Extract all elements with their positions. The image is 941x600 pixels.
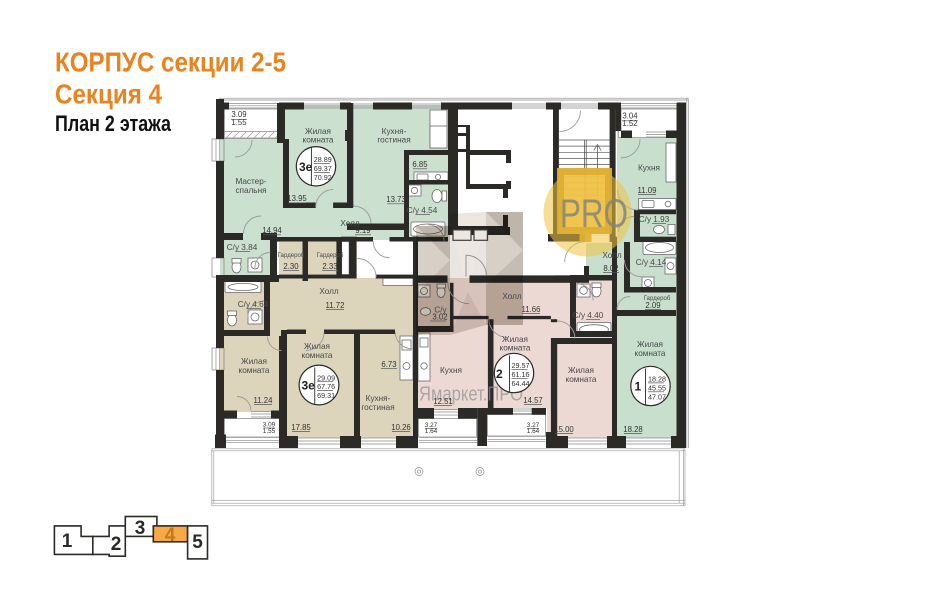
svg-text:6.85: 6.85 xyxy=(412,160,428,169)
svg-text:С/у 4.64: С/у 4.64 xyxy=(238,300,269,309)
svg-text:4: 4 xyxy=(165,525,176,546)
svg-text:10.26: 10.26 xyxy=(391,423,411,432)
svg-text:комната: комната xyxy=(302,351,333,360)
svg-text:1.64: 1.64 xyxy=(527,428,540,435)
svg-text:1.64: 1.64 xyxy=(425,428,438,435)
svg-text:5: 5 xyxy=(192,532,203,553)
svg-text:комната: комната xyxy=(566,375,597,384)
svg-text:С/у 1.93: С/у 1.93 xyxy=(639,215,670,224)
svg-text:Гардероб: Гардероб xyxy=(278,252,305,259)
svg-text:11.72: 11.72 xyxy=(326,301,345,310)
svg-text:1: 1 xyxy=(62,531,73,552)
svg-text:14.57: 14.57 xyxy=(523,396,543,405)
svg-text:Мастер-: Мастер- xyxy=(235,177,266,186)
svg-text:11.66: 11.66 xyxy=(522,305,541,314)
svg-text:18.28: 18.28 xyxy=(623,425,643,434)
svg-text:С/у 4.40: С/у 4.40 xyxy=(573,311,604,320)
svg-text:2.09: 2.09 xyxy=(645,301,660,310)
svg-text:11.24: 11.24 xyxy=(254,396,274,405)
svg-text:3е: 3е xyxy=(299,160,313,174)
svg-text:11.09: 11.09 xyxy=(638,186,657,195)
svg-text:9.19: 9.19 xyxy=(355,226,370,235)
svg-text:2.33: 2.33 xyxy=(322,262,337,271)
svg-text:45.55: 45.55 xyxy=(648,383,666,392)
svg-text:Холл: Холл xyxy=(319,287,339,296)
svg-text:1.55: 1.55 xyxy=(263,428,276,435)
svg-text:План 2 этажа: План 2 этажа xyxy=(55,111,172,136)
svg-text:Холл: Холл xyxy=(502,292,522,301)
svg-text:3: 3 xyxy=(135,518,146,539)
svg-text:Кухня-: Кухня- xyxy=(366,394,391,403)
svg-text:18.28: 18.28 xyxy=(648,375,666,384)
svg-text:Кухня: Кухня xyxy=(638,164,660,173)
svg-text:PRO: PRO xyxy=(560,192,628,236)
svg-text:3е: 3е xyxy=(302,378,316,392)
svg-text:Секция 4: Секция 4 xyxy=(55,79,162,110)
svg-text:спальня: спальня xyxy=(235,186,266,195)
svg-text:61.16: 61.16 xyxy=(512,370,530,379)
svg-text:14.94: 14.94 xyxy=(262,226,282,235)
svg-text:Жилая: Жилая xyxy=(568,366,594,375)
svg-text:47.07: 47.07 xyxy=(648,392,666,401)
svg-text:3.02: 3.02 xyxy=(432,313,447,322)
svg-text:2: 2 xyxy=(111,534,122,555)
svg-text:8.02: 8.02 xyxy=(603,264,618,273)
svg-text:Жилая: Жилая xyxy=(637,340,663,349)
svg-text:комната: комната xyxy=(635,349,666,358)
svg-text:гостиная: гостиная xyxy=(377,136,410,145)
svg-text:1.52: 1.52 xyxy=(622,119,637,128)
svg-text:комната: комната xyxy=(500,344,531,353)
svg-text:Гардероб: Гардероб xyxy=(317,252,344,259)
svg-text:28.89: 28.89 xyxy=(314,155,332,164)
svg-text:2: 2 xyxy=(496,367,503,381)
svg-text:комната: комната xyxy=(239,366,270,375)
svg-text:Жилая: Жилая xyxy=(241,357,267,366)
svg-text:комната: комната xyxy=(303,136,334,145)
svg-text:64.44: 64.44 xyxy=(512,379,530,388)
svg-text:70.92: 70.92 xyxy=(314,173,332,182)
svg-text:69.31: 69.31 xyxy=(317,391,335,400)
svg-text:15.00: 15.00 xyxy=(554,425,574,434)
svg-text:гостиная: гостиная xyxy=(361,403,394,412)
svg-text:С/у 3.84: С/у 3.84 xyxy=(227,243,258,252)
svg-text:1: 1 xyxy=(635,379,642,393)
svg-text:13.73: 13.73 xyxy=(386,195,406,204)
svg-text:Жилая: Жилая xyxy=(304,342,330,351)
svg-text:13.95: 13.95 xyxy=(287,194,307,203)
svg-text:Кухня: Кухня xyxy=(440,366,462,375)
svg-text:69.37: 69.37 xyxy=(314,164,332,173)
svg-text:2.30: 2.30 xyxy=(283,262,299,271)
svg-text:67.76: 67.76 xyxy=(317,382,335,391)
svg-text:С/у 4.14: С/у 4.14 xyxy=(636,258,667,267)
svg-text:17.85: 17.85 xyxy=(291,423,311,432)
svg-text:С/у 4.54: С/у 4.54 xyxy=(407,206,438,215)
svg-text:29.09: 29.09 xyxy=(317,373,335,382)
svg-text:6.73: 6.73 xyxy=(381,360,396,369)
svg-text:29.57: 29.57 xyxy=(512,361,530,370)
svg-text:КОРПУС секции 2-5: КОРПУС секции 2-5 xyxy=(55,47,286,78)
svg-text:Холл: Холл xyxy=(602,251,622,260)
svg-text:12.51: 12.51 xyxy=(433,397,453,406)
